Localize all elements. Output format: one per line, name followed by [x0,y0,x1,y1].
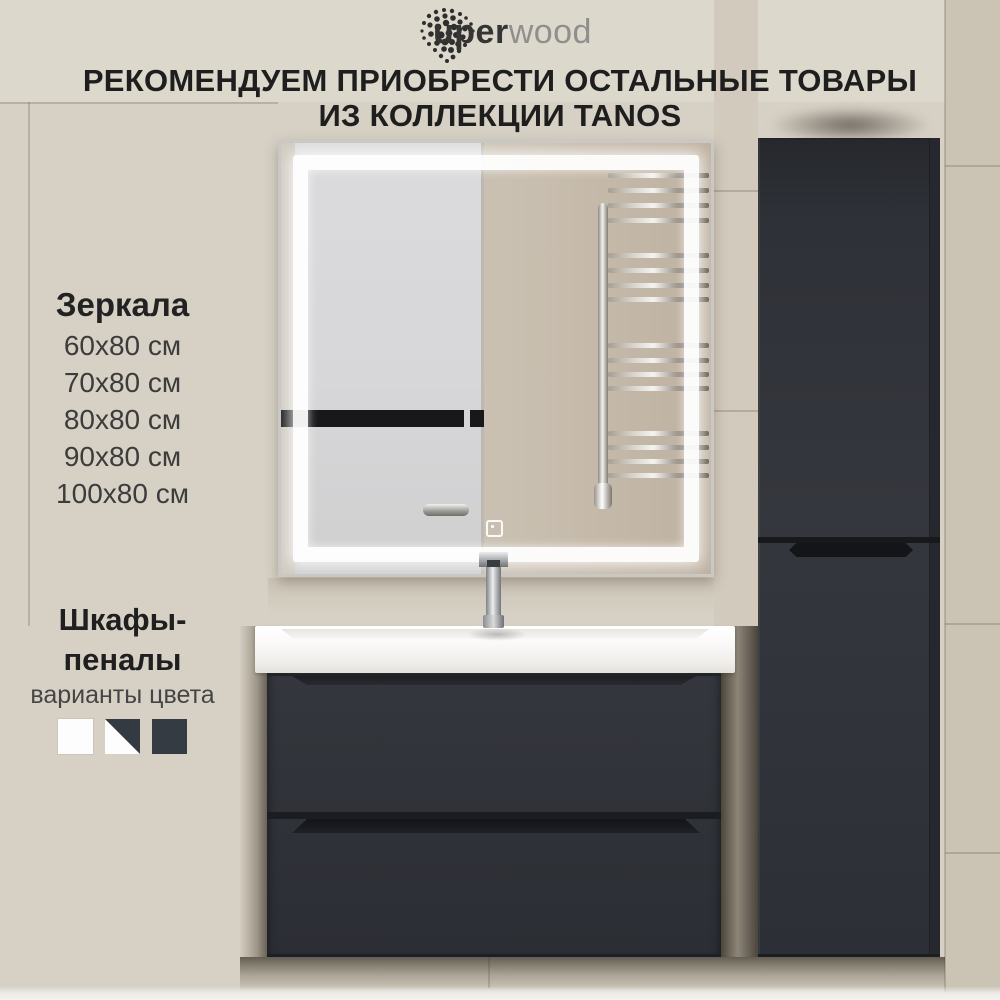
tile-seam [944,0,946,1000]
white-washbasin [255,626,735,673]
cabinet-door-gap [758,537,940,543]
color-swatch-row [0,719,245,754]
logo-wordmark: uperwood [433,13,592,52]
top-drawer-handle-groove [292,676,696,685]
mirror-size-option: 90x80 см [15,438,230,475]
tall-pencil-cabinet [758,138,940,957]
tile-seam [945,623,1000,625]
mirror-glass [281,143,711,574]
cabinets-section-title: Шкафы-пеналы [0,600,245,680]
faucet-body [486,567,501,617]
color-swatch-dark [152,719,187,754]
wall-right-tile-column [945,0,1000,1000]
logo-bold-part: uper [433,13,509,51]
led-light-ring [293,155,699,562]
bottom-drawer-handle-groove [292,819,700,833]
color-swatch-white [58,719,93,754]
brand-logo: uperwood [0,0,1000,62]
mirror-size-option: 60x80 см [15,327,230,364]
bottom-light-strip [0,986,1000,1000]
wall-shadow-between-furniture [721,626,758,957]
drawer-gap-line [267,673,721,676]
faucet-base [483,615,504,628]
heading-line-1: РЕКОМЕНДУЕМ ПРИОБРЕСТИ ОСТАЛЬНЫЕ ТОВАРЫ [0,63,1000,98]
tile-seam [945,852,1000,854]
mirror-size-option: 70x80 см [15,364,230,401]
led-mirror [278,140,714,577]
tile-seam [714,190,758,192]
cabinets-color-subtitle: варианты цвета [0,680,245,710]
mirrors-section: Зеркала 60x80 см 70x80 см 80x80 см 90x80… [15,283,230,512]
drawer-divider-gap [267,812,721,819]
mirror-size-option: 80x80 см [15,401,230,438]
product-card: uperwood РЕКОМЕНДУЕМ ПРИОБРЕСТИ ОСТАЛЬНЫ… [0,0,1000,1000]
mirror-size-option: 100x80 см [15,475,230,512]
vanity-bottom-edge [267,954,721,957]
heading-line-2: ИЗ КОЛЛЕКЦИИ TANOS [0,98,1000,133]
mirrors-section-title: Зеркала [15,283,230,327]
cabinet-bottom-edge [758,954,940,957]
tile-seam [714,410,758,412]
faucet-shadow [467,628,527,641]
cabinets-section: Шкафы-пеналы варианты цвета [0,600,245,754]
tile-seam [945,165,1000,167]
chrome-faucet [479,552,508,628]
cabinet-side-panel [929,138,940,957]
recommendation-heading: РЕКОМЕНДУЕМ ПРИОБРЕСТИ ОСТАЛЬНЫЕ ТОВАРЫ … [0,63,1000,133]
vanity-cabinet [267,673,721,957]
color-swatch-white-dark-split [105,719,140,754]
logo-light-part: wood [509,13,592,51]
cabinet-handle-groove [789,543,913,557]
